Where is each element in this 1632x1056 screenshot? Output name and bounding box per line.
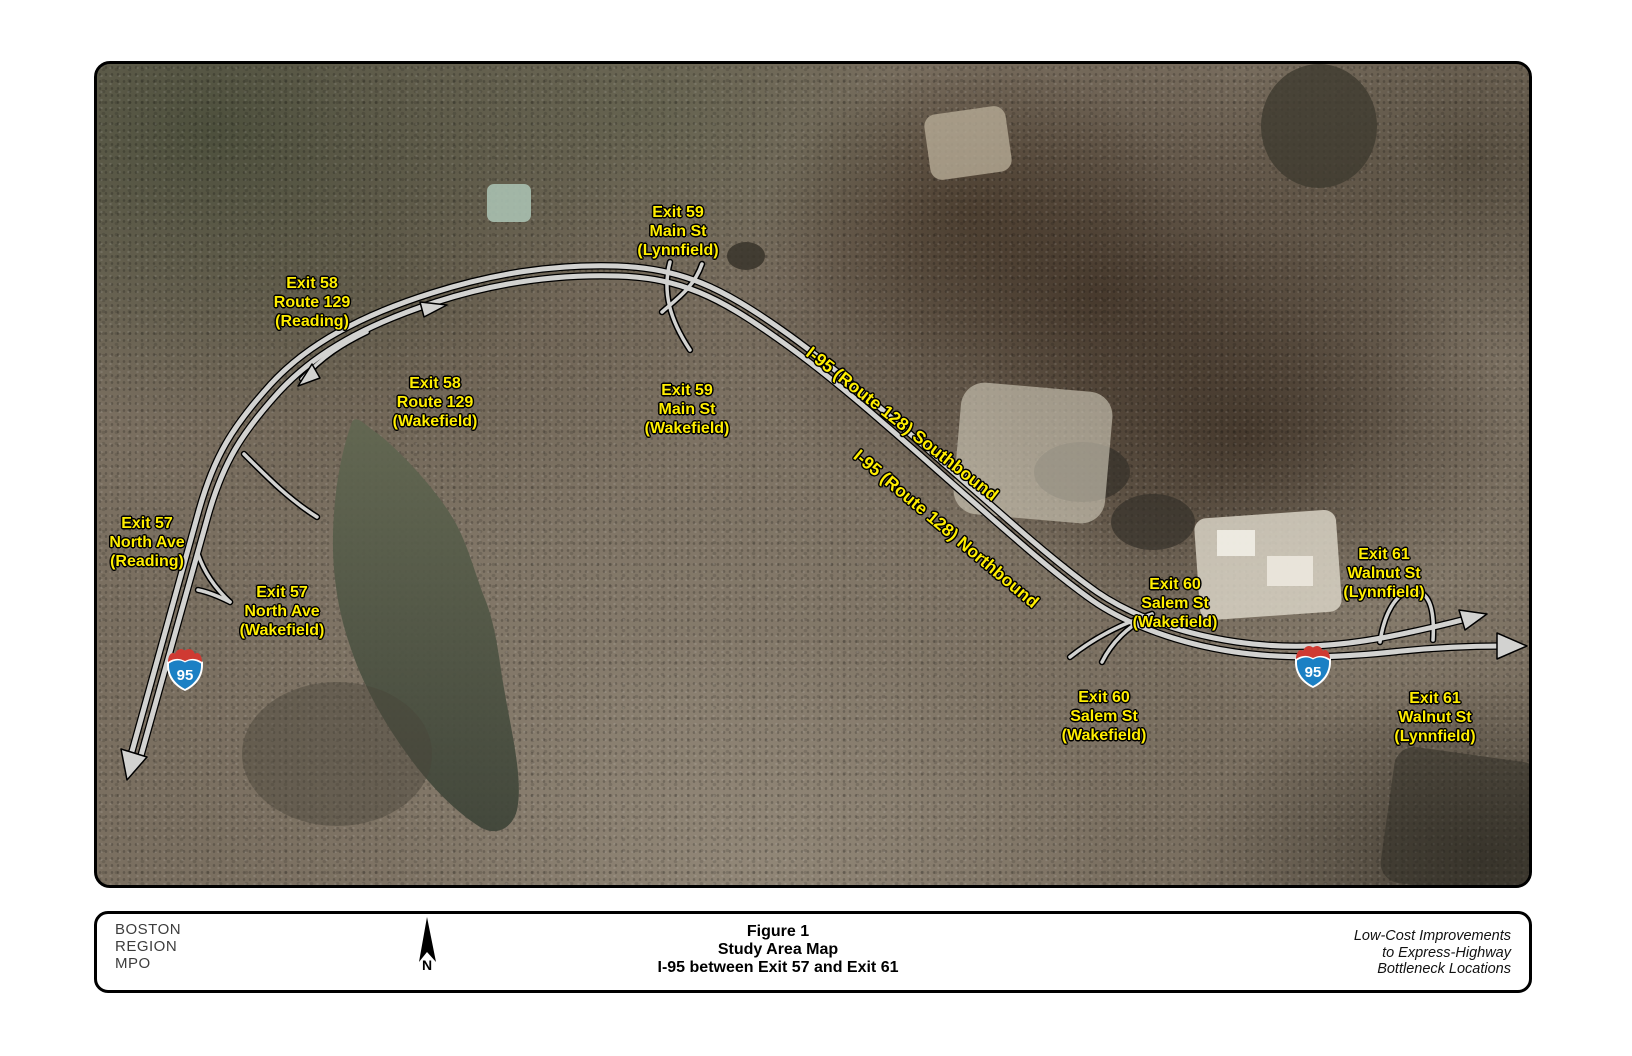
label-exit57-wakefield: Exit 57 North Ave (Wakefield) [240, 583, 325, 640]
flow-arrow-east-lower-icon [1497, 633, 1527, 659]
shield-number-label: 95 [177, 667, 194, 684]
label-exit60-south: Exit 60 Salem St (Wakefield) [1062, 688, 1147, 745]
title-block: BOSTON REGION MPO N Figure 1 Study Area … [94, 911, 1532, 993]
label-exit57-reading: Exit 57 North Ave (Reading) [109, 514, 184, 571]
report-title-note: Low-Cost Improvements to Express-Highway… [1354, 928, 1511, 978]
map-overlay-graphics: 95 95 [97, 64, 1532, 888]
figure-page: 95 95 Exit 59 Main St (Lynnfield) Exit 5… [0, 0, 1632, 1056]
agency-name: BOSTON REGION MPO [115, 921, 181, 972]
label-exit58-reading: Exit 58 Route 129 (Reading) [274, 274, 350, 331]
label-exit61-north: Exit 61 Walnut St (Lynnfield) [1343, 545, 1424, 602]
interstate-95-shield-east: 95 [1295, 646, 1331, 688]
figure-title: Figure 1 Study Area Map I-95 between Exi… [658, 923, 899, 977]
label-exit58-wakefield: Exit 58 Route 129 (Wakefield) [393, 374, 478, 431]
study-area-map: 95 95 Exit 59 Main St (Lynnfield) Exit 5… [94, 61, 1532, 888]
figure-subtitle: Study Area Map [658, 941, 899, 959]
north-arrow: N [409, 916, 445, 973]
flow-arrow-northeast-icon [420, 302, 447, 317]
figure-number: Figure 1 [658, 923, 899, 941]
figure-description: I-95 between Exit 57 and Exit 61 [658, 959, 899, 977]
built-areas [487, 105, 1342, 621]
interstate-95-shield-west: 95 [167, 649, 203, 691]
flow-arrow-east-upper-icon [1459, 610, 1487, 630]
label-exit59-lynnfield: Exit 59 Main St (Lynnfield) [637, 203, 718, 260]
label-exit59-wakefield: Exit 59 Main St (Wakefield) [645, 381, 730, 438]
label-exit61-south: Exit 61 Walnut St (Lynnfield) [1394, 689, 1475, 746]
label-exit60-north: Exit 60 Salem St (Wakefield) [1133, 575, 1218, 632]
shield-number-label: 95 [1305, 664, 1322, 681]
